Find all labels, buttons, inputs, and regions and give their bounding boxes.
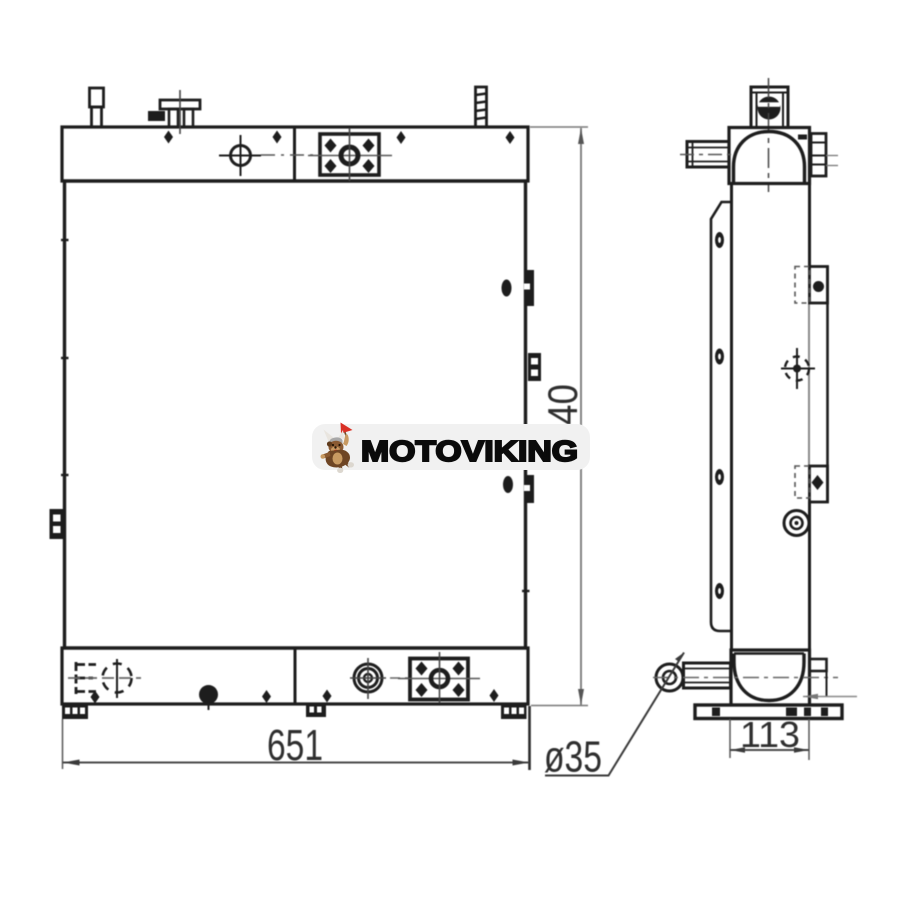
svg-text:ø35: ø35 (544, 733, 602, 782)
svg-text:113: 113 (740, 714, 800, 755)
svg-text:651: 651 (267, 721, 323, 770)
svg-text:MOTOVIKING: MOTOVIKING (361, 436, 578, 468)
svg-text:40: 40 (539, 384, 586, 425)
